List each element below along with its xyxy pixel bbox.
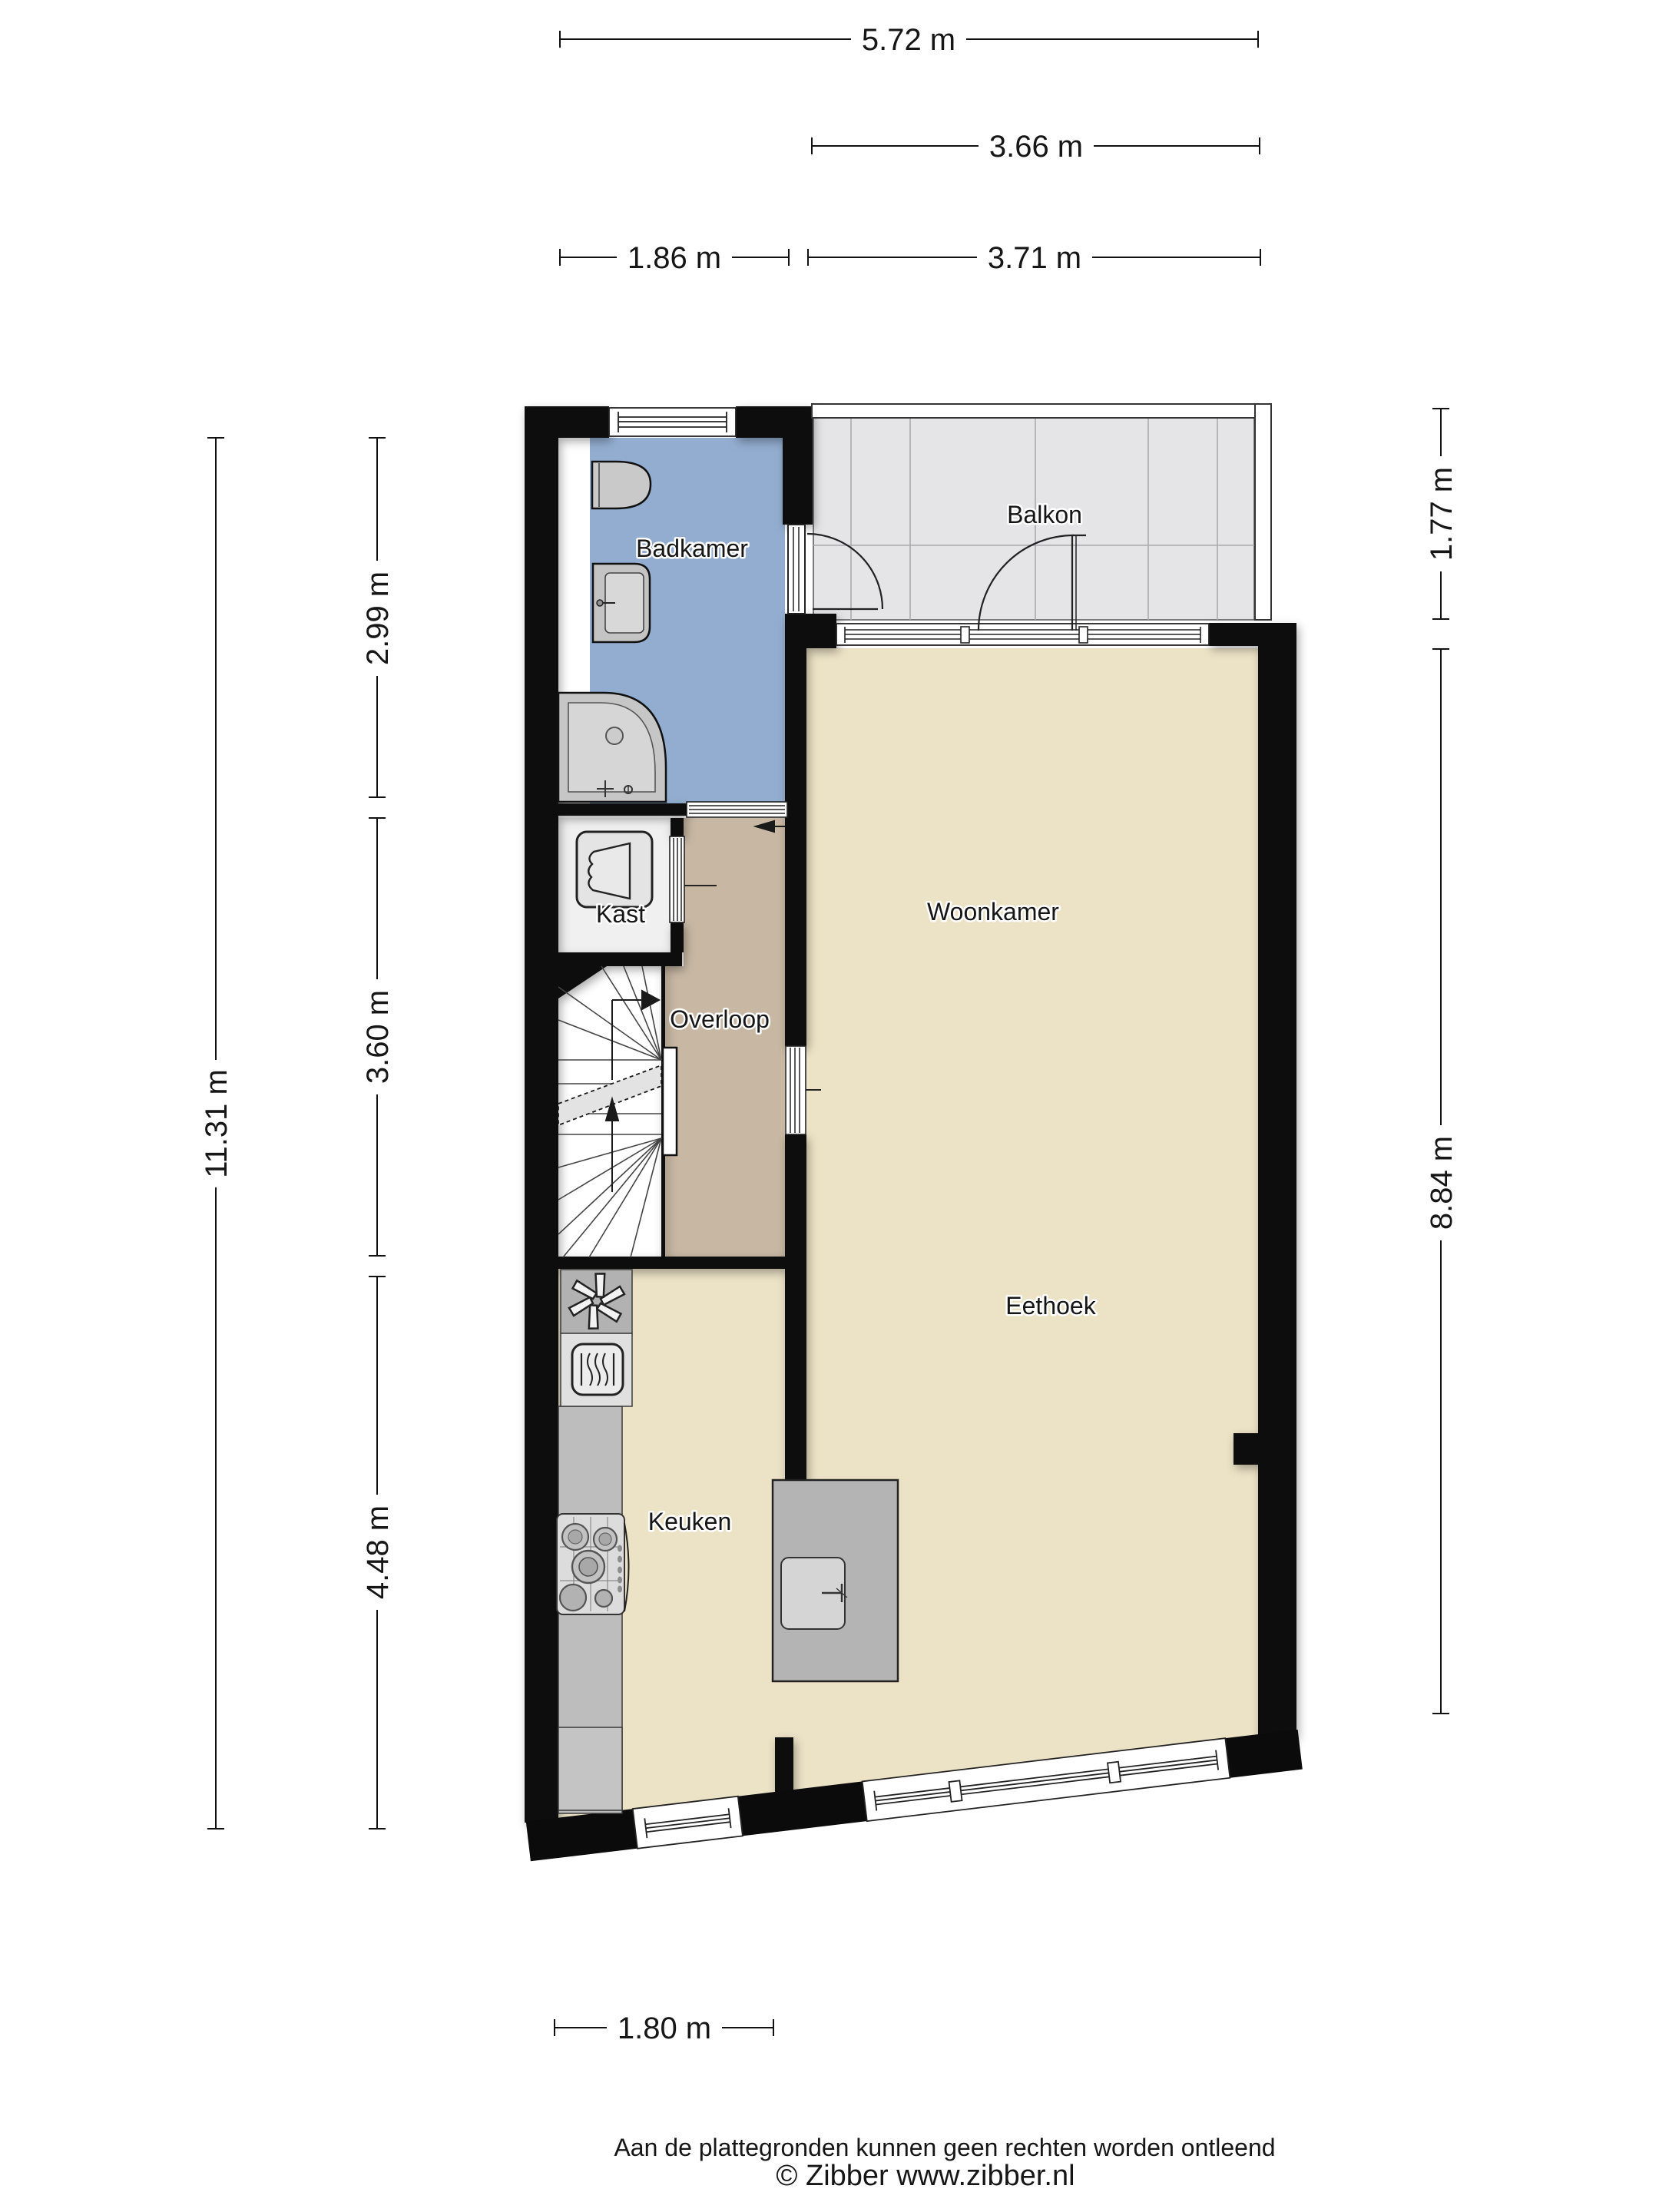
svg-text:8.84 m: 8.84 m <box>1425 1136 1459 1230</box>
svg-text:3.66 m: 3.66 m <box>989 130 1083 164</box>
svg-text:Balkon: Balkon <box>1007 501 1082 528</box>
svg-text:1.80 m: 1.80 m <box>618 2012 711 2045</box>
svg-text:1.77 m: 1.77 m <box>1425 467 1459 561</box>
svg-text:1.86 m: 1.86 m <box>628 241 721 275</box>
svg-text:2.99 m: 2.99 m <box>361 571 395 665</box>
svg-text:Woonkamer: Woonkamer <box>927 898 1059 926</box>
svg-text:Eethoek: Eethoek <box>1005 1292 1096 1320</box>
svg-text:5.72 m: 5.72 m <box>862 23 955 57</box>
svg-text:Overloop: Overloop <box>670 1005 770 1033</box>
svg-text:11.31 m: 11.31 m <box>200 1069 233 1178</box>
svg-text:Kast: Kast <box>596 900 645 928</box>
svg-text:© Zibber www.zibber.nl: © Zibber www.zibber.nl <box>776 2160 1075 2192</box>
svg-text:Keuken: Keuken <box>648 1508 732 1535</box>
svg-text:4.48 m: 4.48 m <box>361 1505 395 1599</box>
svg-text:3.60 m: 3.60 m <box>361 990 395 1084</box>
svg-text:Aan de plattegronden kunnen ge: Aan de plattegronden kunnen geen rechten… <box>614 2134 1275 2161</box>
svg-text:Badkamer: Badkamer <box>636 535 748 562</box>
svg-text:3.71 m: 3.71 m <box>988 241 1081 275</box>
